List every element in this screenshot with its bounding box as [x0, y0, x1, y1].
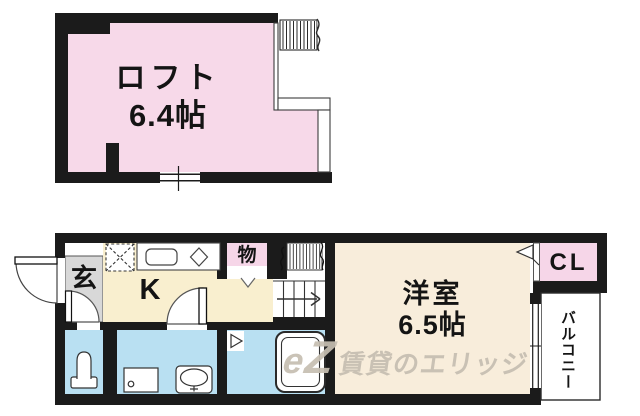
- washing-machine-icon: [124, 368, 158, 392]
- closet-label: CL: [540, 251, 597, 275]
- stove-space-icon: [106, 244, 134, 271]
- toilet-door-opening: [77, 322, 100, 330]
- washbasin-icon: [176, 366, 212, 393]
- bathtub-icon: [276, 332, 325, 392]
- entrance-label: 玄: [64, 265, 104, 291]
- balcony-window-icon: [530, 304, 541, 388]
- floorplan-drawing: [0, 0, 640, 416]
- western-room-size: 6.5帖: [335, 312, 530, 339]
- kitchen-label: K: [126, 276, 174, 305]
- balcony-label: バルコニー: [560, 299, 575, 401]
- bathroom-folding-door-icon: [227, 331, 244, 351]
- stair-upper-hatch-icon: [281, 242, 324, 270]
- kitchen-counter: [137, 243, 220, 270]
- loft-ladder-icon: [280, 19, 320, 51]
- floorplan-image: ロフト 6.4帖 玄 K 物 洋室 6.5帖 CL バルコニー e Z 賃貸のエ…: [0, 0, 640, 416]
- storage-label: 物: [227, 246, 267, 265]
- loft-room-size: 6.4帖: [88, 100, 248, 131]
- front-door-icon: [15, 257, 57, 303]
- entrance-hall-area: [65, 243, 103, 256]
- loft-room-label: ロフト: [88, 64, 248, 94]
- western-room-label: 洋室: [335, 281, 530, 308]
